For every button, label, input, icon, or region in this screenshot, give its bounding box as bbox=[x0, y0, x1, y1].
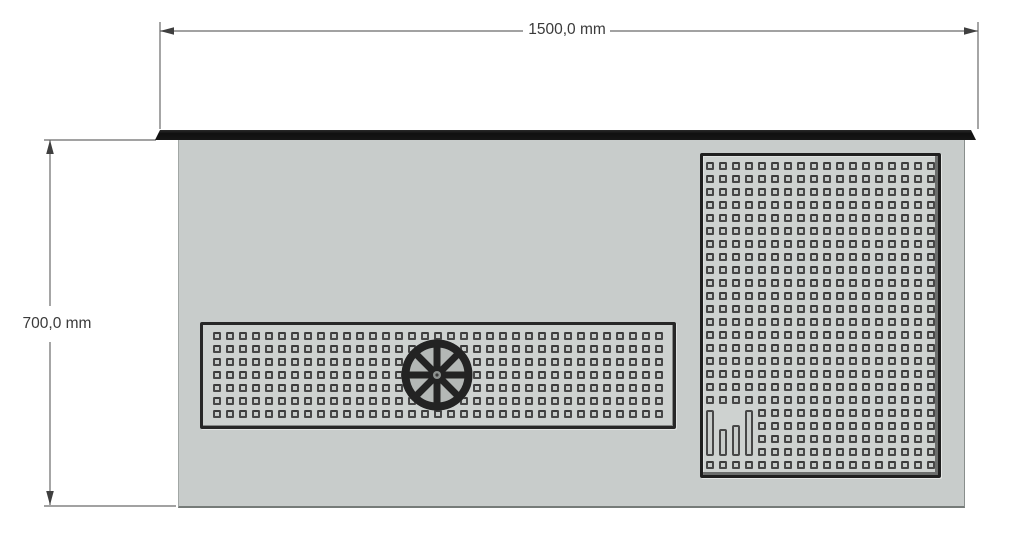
perforation-hole bbox=[525, 397, 533, 405]
perforation-hole bbox=[875, 422, 883, 430]
perforation-hole bbox=[836, 318, 844, 326]
perforation-hole bbox=[745, 383, 753, 391]
perforation-hole bbox=[901, 175, 909, 183]
perforation-hole bbox=[304, 371, 312, 379]
perforation-hole bbox=[901, 279, 909, 287]
perforation-hole bbox=[849, 188, 857, 196]
perforation-hole bbox=[862, 396, 870, 404]
perforation-hole bbox=[758, 331, 766, 339]
perforation-hole bbox=[616, 332, 624, 340]
perforation-hole bbox=[875, 357, 883, 365]
perforation-hole bbox=[538, 397, 546, 405]
perforation-hole bbox=[914, 344, 922, 352]
perforation-hole bbox=[823, 409, 831, 417]
perforation-hole bbox=[745, 266, 753, 274]
perforation-hole bbox=[914, 409, 922, 417]
perforation-hole bbox=[771, 435, 779, 443]
perforation-hole bbox=[849, 201, 857, 209]
perforation-hole bbox=[304, 345, 312, 353]
perforation-hole bbox=[706, 253, 714, 261]
perforation-hole bbox=[888, 175, 896, 183]
perforation-hole bbox=[888, 448, 896, 456]
perforation-hole bbox=[551, 332, 559, 340]
perforation-hole bbox=[901, 162, 909, 170]
perforation-hole bbox=[499, 358, 507, 366]
perforation-hole bbox=[369, 384, 377, 392]
perforation-hole bbox=[758, 240, 766, 248]
perforation-hole bbox=[745, 461, 753, 469]
perforation-hole bbox=[278, 410, 286, 418]
perforation-hole bbox=[862, 175, 870, 183]
perforation-hole bbox=[745, 201, 753, 209]
perforation-hole bbox=[914, 162, 922, 170]
perforation-hole bbox=[784, 266, 792, 274]
perforation-hole bbox=[706, 266, 714, 274]
perforation-hole bbox=[239, 332, 247, 340]
perforation-hole bbox=[706, 357, 714, 365]
perforation-hole bbox=[512, 410, 520, 418]
perforation-hole bbox=[771, 344, 779, 352]
perforation-hole bbox=[823, 292, 831, 300]
perforation-hole bbox=[888, 435, 896, 443]
perforation-hole bbox=[914, 188, 922, 196]
perforation-hole bbox=[901, 357, 909, 365]
vent-panel-perforations bbox=[706, 162, 935, 469]
perforation-hole bbox=[330, 410, 338, 418]
perforation-hole bbox=[706, 370, 714, 378]
perforation-hole bbox=[784, 201, 792, 209]
perforation-hole bbox=[862, 422, 870, 430]
perforation-hole bbox=[797, 162, 805, 170]
perforation-hole bbox=[901, 383, 909, 391]
perforation-hole bbox=[577, 410, 585, 418]
perforation-hole bbox=[862, 370, 870, 378]
perforation-hole bbox=[797, 383, 805, 391]
perforation-hole bbox=[823, 461, 831, 469]
perforation-hole bbox=[810, 318, 818, 326]
splash-edge-strip bbox=[155, 130, 976, 140]
perforation-hole bbox=[771, 409, 779, 417]
perforation-hole bbox=[771, 175, 779, 183]
perforation-hole bbox=[797, 305, 805, 313]
perforation-hole bbox=[551, 371, 559, 379]
perforation-hole bbox=[758, 162, 766, 170]
perforation-hole bbox=[784, 448, 792, 456]
perforation-hole bbox=[512, 384, 520, 392]
perforation-hole bbox=[901, 305, 909, 313]
perforation-hole bbox=[823, 422, 831, 430]
perforation-hole bbox=[797, 214, 805, 222]
perforation-hole bbox=[875, 396, 883, 404]
perforation-hole bbox=[875, 162, 883, 170]
perforation-hole bbox=[849, 305, 857, 313]
perforation-hole bbox=[706, 383, 714, 391]
perforation-hole bbox=[810, 292, 818, 300]
perforation-hole bbox=[927, 253, 935, 261]
perforation-hole bbox=[823, 227, 831, 235]
perforation-hole bbox=[732, 461, 740, 469]
perforation-hole bbox=[758, 201, 766, 209]
perforation-hole bbox=[914, 318, 922, 326]
perforation-hole bbox=[317, 358, 325, 366]
perforation-hole bbox=[784, 318, 792, 326]
perforation-hole bbox=[291, 332, 299, 340]
perforation-hole bbox=[914, 305, 922, 313]
perforation-hole bbox=[525, 384, 533, 392]
perforation-hole bbox=[330, 358, 338, 366]
perforation-hole bbox=[304, 358, 312, 366]
perforation-hole bbox=[927, 461, 935, 469]
perforation-hole bbox=[823, 305, 831, 313]
perforation-hole bbox=[499, 371, 507, 379]
perforation-hole bbox=[239, 371, 247, 379]
perforation-hole bbox=[797, 292, 805, 300]
perforation-hole bbox=[927, 240, 935, 248]
perforation-hole bbox=[564, 384, 572, 392]
perforation-hole bbox=[862, 448, 870, 456]
perforation-hole bbox=[862, 318, 870, 326]
arrowhead-left-icon bbox=[160, 27, 174, 35]
perforation-hole bbox=[901, 292, 909, 300]
perforation-hole bbox=[395, 410, 403, 418]
perforation-hole bbox=[888, 201, 896, 209]
perforation-hole bbox=[719, 188, 727, 196]
perforation-hole bbox=[888, 240, 896, 248]
perforation-hole bbox=[369, 332, 377, 340]
perforation-hole bbox=[486, 332, 494, 340]
perforation-hole bbox=[304, 384, 312, 392]
perforation-hole bbox=[836, 175, 844, 183]
perforation-hole bbox=[771, 201, 779, 209]
perforation-hole bbox=[875, 175, 883, 183]
perforation-hole bbox=[901, 448, 909, 456]
perforation-hole bbox=[797, 253, 805, 261]
perforation-hole bbox=[875, 344, 883, 352]
perforation-hole bbox=[252, 371, 260, 379]
perforation-hole bbox=[291, 397, 299, 405]
perforation-hole bbox=[642, 345, 650, 353]
perforation-hole bbox=[862, 162, 870, 170]
perforation-hole bbox=[356, 345, 364, 353]
perforation-hole bbox=[291, 358, 299, 366]
perforation-hole bbox=[434, 410, 442, 418]
perforation-hole bbox=[823, 448, 831, 456]
perforation-hole bbox=[642, 410, 650, 418]
perforation-hole bbox=[914, 383, 922, 391]
perforation-hole bbox=[758, 188, 766, 196]
perforation-hole bbox=[914, 461, 922, 469]
perforation-hole bbox=[706, 461, 714, 469]
perforation-hole bbox=[706, 175, 714, 183]
perforation-hole bbox=[810, 214, 818, 222]
perforation-hole bbox=[862, 331, 870, 339]
perforation-hole bbox=[771, 461, 779, 469]
perforation-hole bbox=[616, 345, 624, 353]
perforation-hole bbox=[732, 253, 740, 261]
perforation-hole bbox=[862, 227, 870, 235]
perforation-hole bbox=[655, 345, 663, 353]
perforation-hole bbox=[771, 266, 779, 274]
perforation-hole bbox=[771, 422, 779, 430]
perforation-hole bbox=[901, 240, 909, 248]
perforation-hole bbox=[603, 397, 611, 405]
perforation-hole bbox=[836, 422, 844, 430]
perforation-hole bbox=[603, 410, 611, 418]
perforation-hole bbox=[719, 461, 727, 469]
perforation-hole bbox=[590, 332, 598, 340]
perforation-hole bbox=[914, 448, 922, 456]
perforation-hole bbox=[927, 409, 935, 417]
perforation-hole bbox=[343, 358, 351, 366]
perforation-hole bbox=[875, 292, 883, 300]
perforation-hole bbox=[213, 345, 221, 353]
perforation-hole bbox=[577, 397, 585, 405]
perforation-hole bbox=[849, 461, 857, 469]
perforation-hole bbox=[745, 331, 753, 339]
perforation-hole bbox=[745, 240, 753, 248]
perforation-hole bbox=[538, 371, 546, 379]
perforation-hole bbox=[771, 214, 779, 222]
perforation-hole bbox=[849, 240, 857, 248]
perforation-hole bbox=[265, 397, 273, 405]
perforation-hole bbox=[447, 410, 455, 418]
perforation-hole bbox=[836, 344, 844, 352]
perforation-hole bbox=[758, 396, 766, 404]
perforation-hole bbox=[330, 371, 338, 379]
perforation-hole bbox=[213, 371, 221, 379]
perforation-hole bbox=[927, 318, 935, 326]
perforation-hole bbox=[849, 344, 857, 352]
perforation-hole bbox=[797, 331, 805, 339]
perforation-hole bbox=[473, 332, 481, 340]
perforation-hole bbox=[771, 162, 779, 170]
perforation-hole bbox=[758, 448, 766, 456]
perforation-hole bbox=[771, 240, 779, 248]
perforation-hole bbox=[888, 305, 896, 313]
perforation-hole bbox=[473, 358, 481, 366]
perforation-hole bbox=[551, 384, 559, 392]
perforation-hole bbox=[888, 461, 896, 469]
perforation-hole bbox=[317, 332, 325, 340]
perforation-hole bbox=[849, 279, 857, 287]
perforation-hole bbox=[836, 435, 844, 443]
perforation-hole bbox=[849, 357, 857, 365]
perforation-hole bbox=[823, 383, 831, 391]
perforation-hole bbox=[784, 292, 792, 300]
perforation-hole bbox=[732, 305, 740, 313]
perforation-hole bbox=[369, 371, 377, 379]
perforation-hole bbox=[797, 448, 805, 456]
perforation-hole bbox=[642, 358, 650, 366]
perforation-hole bbox=[836, 305, 844, 313]
perforation-hole bbox=[862, 305, 870, 313]
vent-slot bbox=[745, 410, 753, 456]
perforation-hole bbox=[901, 435, 909, 443]
perforation-hole bbox=[849, 162, 857, 170]
perforation-hole bbox=[836, 409, 844, 417]
perforation-hole bbox=[317, 384, 325, 392]
perforation-hole bbox=[836, 279, 844, 287]
perforation-hole bbox=[719, 253, 727, 261]
perforation-hole bbox=[758, 175, 766, 183]
perforation-hole bbox=[745, 357, 753, 365]
perforation-hole bbox=[745, 318, 753, 326]
perforation-hole bbox=[629, 332, 637, 340]
perforation-hole bbox=[460, 410, 468, 418]
perforation-hole bbox=[719, 318, 727, 326]
perforation-hole bbox=[784, 461, 792, 469]
perforation-hole bbox=[758, 266, 766, 274]
perforation-hole bbox=[810, 357, 818, 365]
perforation-hole bbox=[732, 396, 740, 404]
perforation-hole bbox=[577, 345, 585, 353]
perforation-hole bbox=[732, 279, 740, 287]
perforation-hole bbox=[888, 188, 896, 196]
perforation-hole bbox=[732, 175, 740, 183]
perforation-hole bbox=[706, 318, 714, 326]
perforation-hole bbox=[888, 214, 896, 222]
perforation-hole bbox=[629, 397, 637, 405]
perforation-hole bbox=[836, 266, 844, 274]
perforation-hole bbox=[784, 305, 792, 313]
perforation-hole bbox=[330, 397, 338, 405]
perforation-hole bbox=[927, 396, 935, 404]
perforation-hole bbox=[719, 266, 727, 274]
perforation-hole bbox=[810, 266, 818, 274]
perforation-hole bbox=[499, 410, 507, 418]
perforation-hole bbox=[745, 305, 753, 313]
perforation-hole bbox=[927, 357, 935, 365]
perforation-hole bbox=[771, 292, 779, 300]
perforation-hole bbox=[823, 214, 831, 222]
perforation-hole bbox=[888, 227, 896, 235]
perforation-hole bbox=[343, 397, 351, 405]
perforation-hole bbox=[226, 410, 234, 418]
perforation-hole bbox=[810, 396, 818, 404]
perforation-hole bbox=[849, 292, 857, 300]
perforation-hole bbox=[771, 188, 779, 196]
perforation-hole bbox=[784, 370, 792, 378]
perforation-hole bbox=[797, 318, 805, 326]
perforation-hole bbox=[888, 266, 896, 274]
perforation-hole bbox=[213, 397, 221, 405]
perforation-hole bbox=[356, 397, 364, 405]
perforation-hole bbox=[823, 253, 831, 261]
perforation-hole bbox=[278, 332, 286, 340]
perforation-hole bbox=[901, 331, 909, 339]
perforation-hole bbox=[706, 292, 714, 300]
perforation-hole bbox=[849, 409, 857, 417]
perforation-hole bbox=[862, 292, 870, 300]
perforation-hole bbox=[771, 396, 779, 404]
perforation-hole bbox=[797, 175, 805, 183]
perforation-hole bbox=[564, 371, 572, 379]
perforation-hole bbox=[823, 318, 831, 326]
perforation-hole bbox=[901, 396, 909, 404]
arrowhead-right-icon bbox=[964, 27, 978, 35]
perforation-hole bbox=[875, 383, 883, 391]
perforation-hole bbox=[836, 448, 844, 456]
perforation-hole bbox=[745, 370, 753, 378]
perforation-hole bbox=[719, 396, 727, 404]
perforation-hole bbox=[797, 409, 805, 417]
perforation-hole bbox=[771, 370, 779, 378]
perforation-hole bbox=[810, 279, 818, 287]
perforation-hole bbox=[927, 162, 935, 170]
perforation-hole bbox=[771, 253, 779, 261]
perforation-hole bbox=[213, 358, 221, 366]
perforation-hole bbox=[745, 188, 753, 196]
perforation-hole bbox=[927, 292, 935, 300]
perforation-hole bbox=[304, 397, 312, 405]
perforation-hole bbox=[758, 214, 766, 222]
perforation-hole bbox=[836, 214, 844, 222]
perforation-hole bbox=[226, 371, 234, 379]
perforation-hole bbox=[732, 227, 740, 235]
perforation-hole bbox=[810, 227, 818, 235]
perforation-hole bbox=[784, 396, 792, 404]
perforation-hole bbox=[577, 371, 585, 379]
perforation-hole bbox=[862, 240, 870, 248]
perforation-hole bbox=[745, 396, 753, 404]
perforation-hole bbox=[927, 344, 935, 352]
perforation-hole bbox=[719, 331, 727, 339]
perforation-hole bbox=[564, 410, 572, 418]
perforation-hole bbox=[719, 162, 727, 170]
perforation-hole bbox=[888, 422, 896, 430]
perforation-hole bbox=[810, 409, 818, 417]
vent-slot bbox=[719, 429, 727, 456]
perforation-hole bbox=[758, 422, 766, 430]
perforation-hole bbox=[590, 358, 598, 366]
perforation-hole bbox=[771, 383, 779, 391]
perforation-hole bbox=[862, 201, 870, 209]
perforation-hole bbox=[862, 214, 870, 222]
perforation-hole bbox=[616, 358, 624, 366]
perforation-hole bbox=[810, 461, 818, 469]
perforation-hole bbox=[784, 331, 792, 339]
perforation-hole bbox=[732, 201, 740, 209]
perforation-hole bbox=[810, 448, 818, 456]
perforation-hole bbox=[862, 357, 870, 365]
perforation-hole bbox=[486, 410, 494, 418]
perforation-hole bbox=[603, 371, 611, 379]
perforation-hole bbox=[862, 266, 870, 274]
perforation-hole bbox=[836, 370, 844, 378]
perforation-hole bbox=[849, 318, 857, 326]
perforation-hole bbox=[810, 383, 818, 391]
perforation-hole bbox=[901, 266, 909, 274]
perforation-hole bbox=[265, 384, 273, 392]
perforation-hole bbox=[927, 370, 935, 378]
perforation-hole bbox=[901, 201, 909, 209]
perforation-hole bbox=[810, 305, 818, 313]
perforation-hole bbox=[343, 345, 351, 353]
perforation-hole bbox=[473, 397, 481, 405]
perforation-hole bbox=[226, 397, 234, 405]
perforation-hole bbox=[213, 384, 221, 392]
perforation-hole bbox=[784, 344, 792, 352]
perforation-hole bbox=[265, 345, 273, 353]
perforation-hole bbox=[784, 279, 792, 287]
perforation-hole bbox=[486, 345, 494, 353]
perforation-hole bbox=[732, 383, 740, 391]
perforation-hole bbox=[784, 227, 792, 235]
perforation-hole bbox=[486, 371, 494, 379]
perforation-hole bbox=[901, 409, 909, 417]
perforation-hole bbox=[732, 240, 740, 248]
perforation-hole bbox=[642, 397, 650, 405]
